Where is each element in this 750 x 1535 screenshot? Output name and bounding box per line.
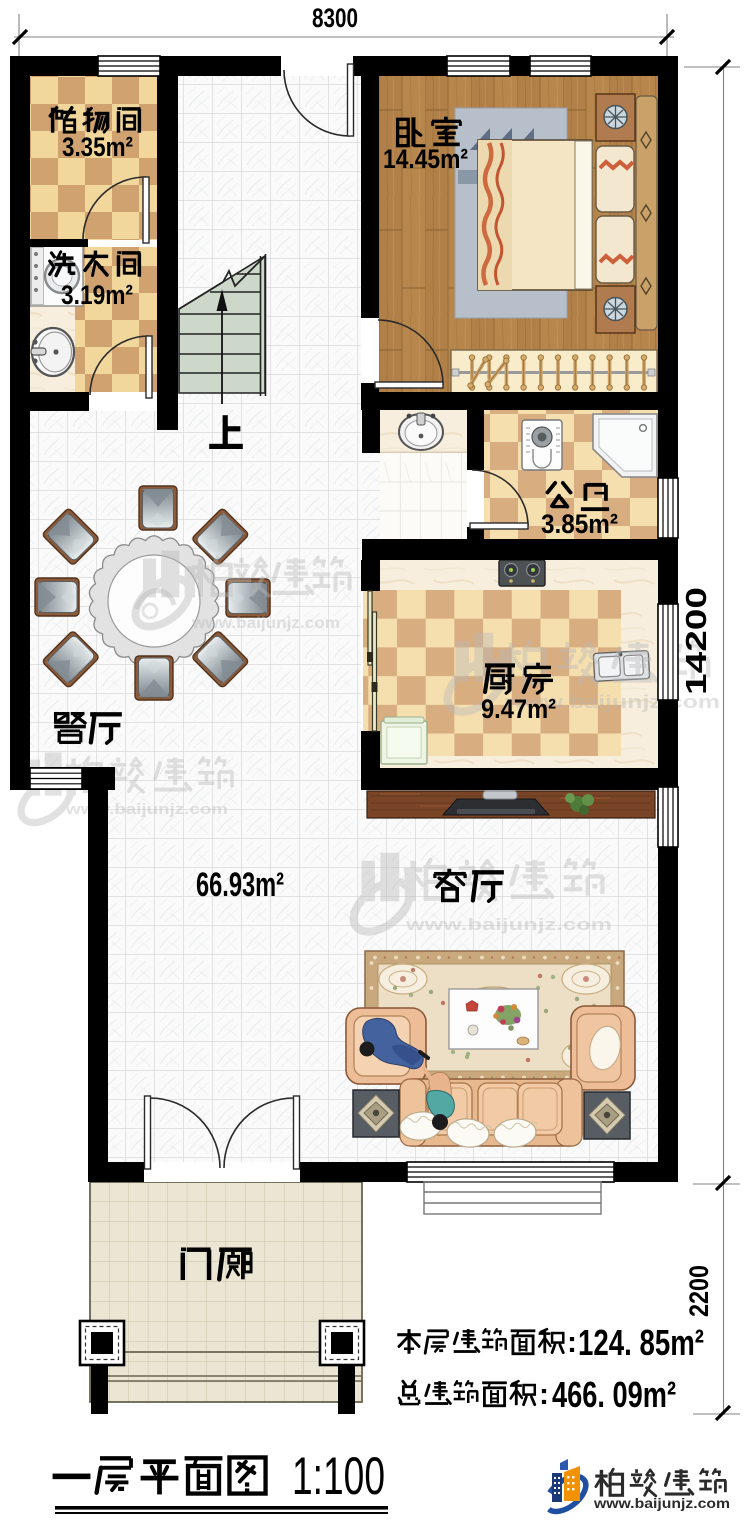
svg-text:www.baijunjz.com: www.baijunjz.com [191,615,340,632]
svg-text:3.19m²: 3.19m² [61,280,133,310]
svg-text:466. 09m²: 466. 09m² [552,1374,676,1415]
svg-text:1:100: 1:100 [292,1447,385,1506]
svg-text:2200: 2200 [684,1265,714,1317]
svg-text:3.85m²: 3.85m² [541,509,618,539]
svg-text:9.47m²: 9.47m² [481,694,556,724]
svg-text::: : [539,1378,549,1411]
svg-text:124. 85m²: 124. 85m² [578,1322,704,1363]
svg-text:www.baijunjz.com: www.baijunjz.com [405,915,612,934]
svg-text:66.93m²: 66.93m² [196,866,284,904]
svg-text:14200: 14200 [681,587,713,695]
svg-text:8300: 8300 [312,3,358,33]
svg-text:www.baijunjz.com: www.baijunjz.com [593,1496,730,1511]
svg-text:3.35m²: 3.35m² [62,132,133,162]
svg-text:14.45m²: 14.45m² [383,144,468,174]
svg-text::: : [567,1326,577,1359]
